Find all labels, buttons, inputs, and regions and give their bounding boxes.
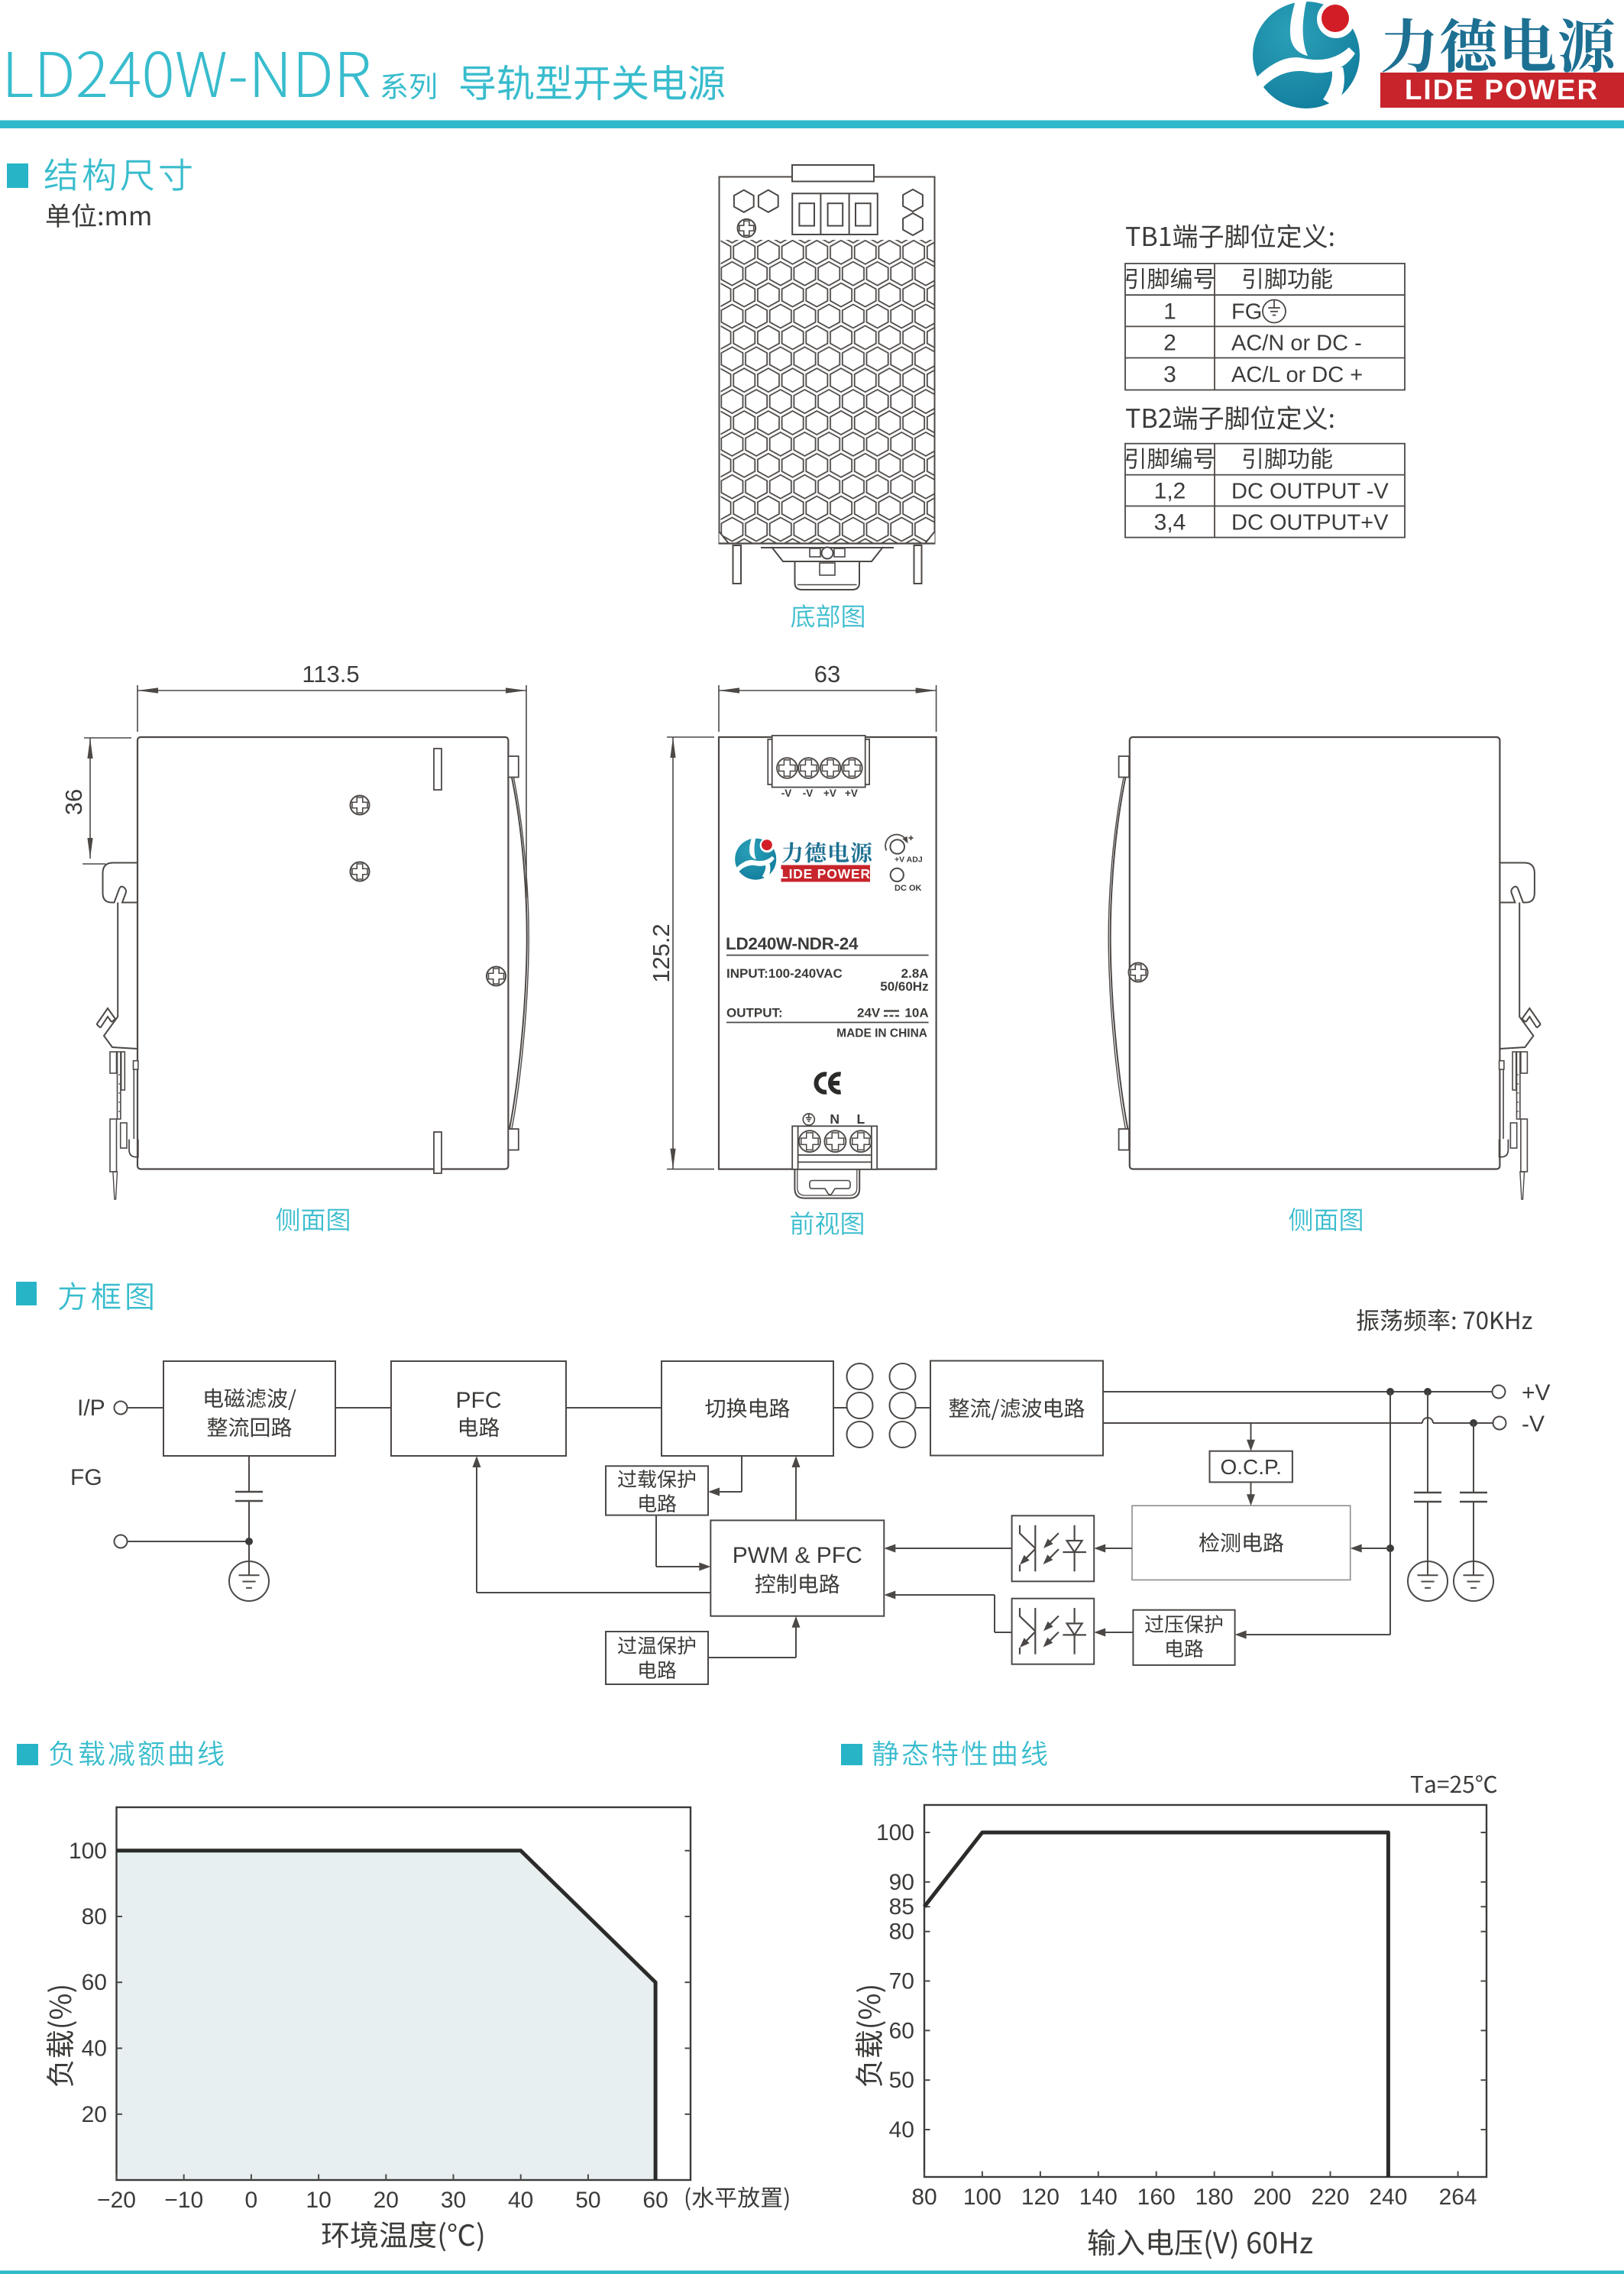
svg-text:+V: +V xyxy=(1522,1380,1551,1405)
svg-text:100: 100 xyxy=(963,2185,1001,2210)
svg-text:+V: +V xyxy=(845,788,858,799)
svg-text:50/60Hz: 50/60Hz xyxy=(880,979,928,994)
svg-text:120: 120 xyxy=(1021,2185,1059,2210)
svg-text:85: 85 xyxy=(889,1894,914,1920)
svg-text:10: 10 xyxy=(306,2188,331,2213)
svg-text:160: 160 xyxy=(1137,2185,1176,2210)
svg-text:AC/N or DC -: AC/N or DC - xyxy=(1231,332,1362,356)
svg-text:2: 2 xyxy=(1163,331,1176,356)
svg-text:DC OK: DC OK xyxy=(894,884,922,893)
svg-text:DC OUTPUT+V: DC OUTPUT+V xyxy=(1231,511,1389,535)
svg-text:240: 240 xyxy=(1369,2185,1407,2210)
svg-text:3,4: 3,4 xyxy=(1154,510,1186,535)
svg-text:PWM & PFC: PWM & PFC xyxy=(733,1543,862,1568)
svg-text:1,2: 1,2 xyxy=(1154,479,1186,504)
svg-text:180: 180 xyxy=(1195,2185,1234,2210)
svg-text:−20: −20 xyxy=(97,2188,136,2213)
svg-text:113.5: 113.5 xyxy=(302,661,359,687)
svg-text:36: 36 xyxy=(60,789,87,815)
svg-text:80: 80 xyxy=(82,1904,107,1929)
svg-text:+V ADJ: +V ADJ xyxy=(894,856,923,865)
svg-text:FG: FG xyxy=(70,1465,102,1490)
svg-text:AC/L or DC +: AC/L or DC + xyxy=(1231,363,1363,387)
svg-text:I/P: I/P xyxy=(77,1396,105,1421)
svg-text:140: 140 xyxy=(1079,2185,1118,2210)
svg-text:−10: −10 xyxy=(164,2188,203,2213)
svg-text:3: 3 xyxy=(1163,362,1176,387)
svg-text:60: 60 xyxy=(82,1970,107,1995)
svg-text:LD240W-NDR-24: LD240W-NDR-24 xyxy=(726,934,859,953)
svg-text:24V: 24V xyxy=(857,1006,881,1020)
svg-text:10A: 10A xyxy=(904,1006,928,1020)
svg-text:50: 50 xyxy=(575,2188,600,2213)
svg-text:50: 50 xyxy=(889,2068,914,2093)
svg-text:60: 60 xyxy=(889,2018,914,2043)
svg-text:100: 100 xyxy=(876,1820,914,1845)
svg-text:-V: -V xyxy=(781,788,792,799)
svg-text:MADE IN CHINA: MADE IN CHINA xyxy=(836,1027,927,1040)
svg-text:-V: -V xyxy=(1522,1412,1545,1437)
svg-text:264: 264 xyxy=(1439,2185,1477,2210)
svg-text:80: 80 xyxy=(889,1920,914,1945)
svg-text:L: L xyxy=(857,1111,865,1127)
svg-text:DC OUTPUT -V: DC OUTPUT -V xyxy=(1231,480,1389,504)
svg-text:40: 40 xyxy=(889,2117,914,2143)
svg-text:63: 63 xyxy=(814,661,840,687)
svg-text:INPUT:100-240VAC: INPUT:100-240VAC xyxy=(726,966,843,981)
svg-text:+V: +V xyxy=(823,788,836,799)
svg-text:220: 220 xyxy=(1311,2185,1349,2210)
svg-text:N: N xyxy=(830,1111,839,1127)
svg-text:O.C.P.: O.C.P. xyxy=(1220,1455,1281,1479)
svg-text:40: 40 xyxy=(82,2036,107,2062)
svg-text:125.2: 125.2 xyxy=(648,923,675,983)
svg-text:60: 60 xyxy=(642,2188,668,2213)
svg-text:100: 100 xyxy=(69,1839,107,1864)
svg-text:90: 90 xyxy=(889,1870,914,1895)
svg-text:70: 70 xyxy=(889,1969,914,1994)
svg-text:30: 30 xyxy=(441,2188,466,2213)
svg-text:20: 20 xyxy=(374,2188,399,2213)
svg-text:OUTPUT:: OUTPUT: xyxy=(726,1006,783,1020)
svg-text:FG: FG xyxy=(1231,300,1262,325)
svg-text:0: 0 xyxy=(245,2188,258,2213)
svg-text:200: 200 xyxy=(1254,2185,1292,2210)
svg-text:LIDE POWER: LIDE POWER xyxy=(780,866,871,881)
svg-text:1: 1 xyxy=(1163,299,1176,325)
svg-text:PFC: PFC xyxy=(456,1388,502,1413)
svg-text:20: 20 xyxy=(82,2102,107,2127)
svg-text:80: 80 xyxy=(911,2185,937,2210)
svg-text:LIDE POWER: LIDE POWER xyxy=(1405,74,1599,105)
svg-text:40: 40 xyxy=(508,2188,533,2213)
svg-text:-V: -V xyxy=(803,788,814,799)
